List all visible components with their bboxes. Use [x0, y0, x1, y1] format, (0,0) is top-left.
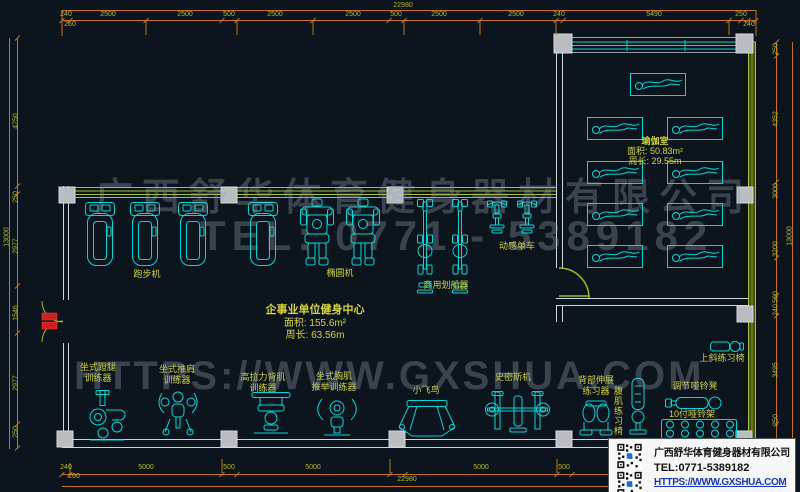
dim-label: 3495: [773, 362, 780, 378]
dim-label: 5490: [646, 11, 662, 18]
dim-label: 3000: [773, 183, 780, 199]
label-treadmill: 跑步机: [133, 270, 160, 279]
dim-label: 5000: [305, 464, 321, 471]
dim-top-total: 22980: [393, 2, 412, 9]
elliptical-icon: [301, 199, 334, 265]
dim-label: 500: [390, 11, 402, 18]
rower-icon: [453, 200, 468, 294]
yoga-mats-group: [588, 74, 723, 268]
dim-label: 2500: [431, 11, 447, 18]
dim-label: 2977: [13, 238, 20, 254]
label-leg-press: 坐式蹬腿: [80, 363, 116, 372]
label-elliptical: 椭圆机: [326, 269, 353, 278]
qr-code-icon: [613, 443, 646, 469]
ellipticals-group: [301, 199, 380, 265]
back-extension-icon: [580, 401, 612, 435]
label-chest-press: 推举训练器: [311, 383, 356, 392]
dim-bottom-total: 22980: [397, 476, 416, 483]
label-shoulder-press: 训练器: [163, 376, 190, 385]
adjustable-bench-icon: [666, 397, 722, 409]
dim-label: 240: [553, 11, 565, 18]
label-lat-pulldown: 训练器: [249, 384, 276, 393]
company-url: HTTPS://WWW.GXSHUA.COM: [654, 477, 790, 488]
label-ab-chair: 腹肌练习椅: [612, 386, 625, 436]
elliptical-icon: [347, 199, 380, 265]
dim-label: 2500: [100, 11, 116, 18]
yoga-mat-icon: [588, 246, 643, 268]
dim-label: 240: [60, 11, 72, 18]
label-spin-bike: 动感单车: [499, 242, 535, 251]
dim-label: 2500: [345, 11, 361, 18]
dim-label: 2977: [13, 375, 20, 391]
dim-label: 5000: [473, 464, 489, 471]
dim-left-total: 13000: [4, 227, 11, 246]
dim-label: 1546: [13, 305, 20, 321]
treadmill-icon: [249, 203, 278, 266]
dim-label: 250: [13, 426, 20, 438]
spin-bike-icon: [518, 201, 537, 233]
dim-label: 500: [223, 464, 235, 471]
label-back-extension: 练习器: [582, 387, 609, 396]
rowers-group: [418, 200, 468, 294]
dim-label: 500: [558, 464, 570, 471]
dim-label: 2500: [508, 11, 524, 18]
dim-label: 240: [743, 21, 755, 28]
yoga-door-icon: [559, 268, 589, 298]
label-shoulder-press: 坐式推肩: [159, 365, 195, 374]
yoga-mat-icon: [668, 118, 723, 140]
dim-label: 3200: [773, 241, 780, 257]
wall-top-green: [62, 188, 556, 198]
smith-machine-icon: [486, 392, 550, 433]
dim-label: 500: [773, 291, 780, 303]
dim-label: 260: [68, 473, 80, 480]
label-back-extension: 背部伸展: [578, 376, 614, 385]
rower-icon: [418, 200, 433, 294]
spin-bikes-group: [488, 201, 537, 233]
dim-label: 4352: [773, 111, 780, 127]
label-adjustable-bench: 调节哑铃凳: [672, 382, 717, 391]
dim-label: 250: [773, 43, 780, 55]
qr-code-icon: [613, 471, 646, 492]
dumbbell-rack-icon: [662, 420, 737, 439]
spin-bike-icon: [488, 201, 507, 233]
dim-label: 250: [735, 11, 747, 18]
dim-label: 2500: [177, 11, 193, 18]
dim-label: 240: [773, 304, 780, 316]
label-leg-press: 训练器: [84, 374, 111, 383]
yoga-mat-icon: [668, 246, 723, 268]
dim-right-total: 13000: [787, 226, 794, 245]
treadmills-group: [86, 203, 278, 266]
ab-chair-icon: [630, 379, 646, 435]
main-room-perimeter: 周长: 63.56m: [286, 326, 345, 341]
label-cable-fly: 小飞鸟: [412, 386, 439, 395]
yoga-room-perimeter: 周长: 29.55m: [628, 154, 681, 167]
entrance-door-icon: [42, 301, 63, 342]
qr-column: [613, 443, 649, 492]
dim-label: 5000: [138, 464, 154, 471]
dim-label: 240: [60, 464, 72, 471]
dim-label: 250: [773, 414, 780, 426]
treadmill-icon: [86, 203, 115, 266]
dim-label: 4750: [13, 113, 20, 129]
label-chest-press: 坐式胸肌: [316, 372, 352, 381]
yoga-mat-icon: [631, 74, 686, 96]
leg-press-icon: [90, 391, 125, 441]
yoga-mat-icon: [588, 204, 643, 226]
label-incline-bench: 上斜练习椅: [699, 354, 744, 363]
lat-pulldown-icon: [252, 393, 290, 434]
treadmill-icon: [131, 203, 160, 266]
yoga-mat-icon: [588, 118, 643, 140]
title-block-text: 广西舒华体育健身器材有限公司 TEL:0771-5389182 HTTPS://…: [654, 443, 790, 492]
dim-label: 2500: [267, 11, 283, 18]
label-rower: 商用划船器: [423, 281, 468, 290]
cad-floor-plan: 跑步机 椭圆机 商用划船器 动感单车 坐式蹬腿 训练器 坐式推肩 训练器 高拉力…: [0, 0, 800, 492]
dim-label: 260: [64, 21, 76, 28]
label-smith-machine: 史密斯机: [495, 373, 531, 382]
yoga-mat-icon: [668, 204, 723, 226]
company-name: 广西舒华体育健身器材有限公司: [654, 444, 790, 459]
chest-press-icon: [318, 399, 357, 435]
treadmill-icon: [179, 203, 208, 266]
window-icon: [563, 38, 739, 53]
shoulder-press-icon: [159, 392, 197, 435]
cable-fly-icon: [399, 401, 455, 437]
dim-label: 500: [223, 11, 235, 18]
incline-bench-icon: [711, 342, 744, 352]
title-block: 广西舒华体育健身器材有限公司 TEL:0771-5389182 HTTPS://…: [608, 438, 796, 492]
walls-white: [62, 53, 750, 448]
label-lat-pulldown: 高拉力背肌: [240, 373, 285, 382]
dim-label: 250: [13, 191, 20, 203]
wall-east-green: [749, 42, 756, 448]
company-tel: TEL:0771-5389182: [654, 462, 790, 474]
label-dumbbell-rack: 10付哑铃架: [669, 410, 715, 419]
